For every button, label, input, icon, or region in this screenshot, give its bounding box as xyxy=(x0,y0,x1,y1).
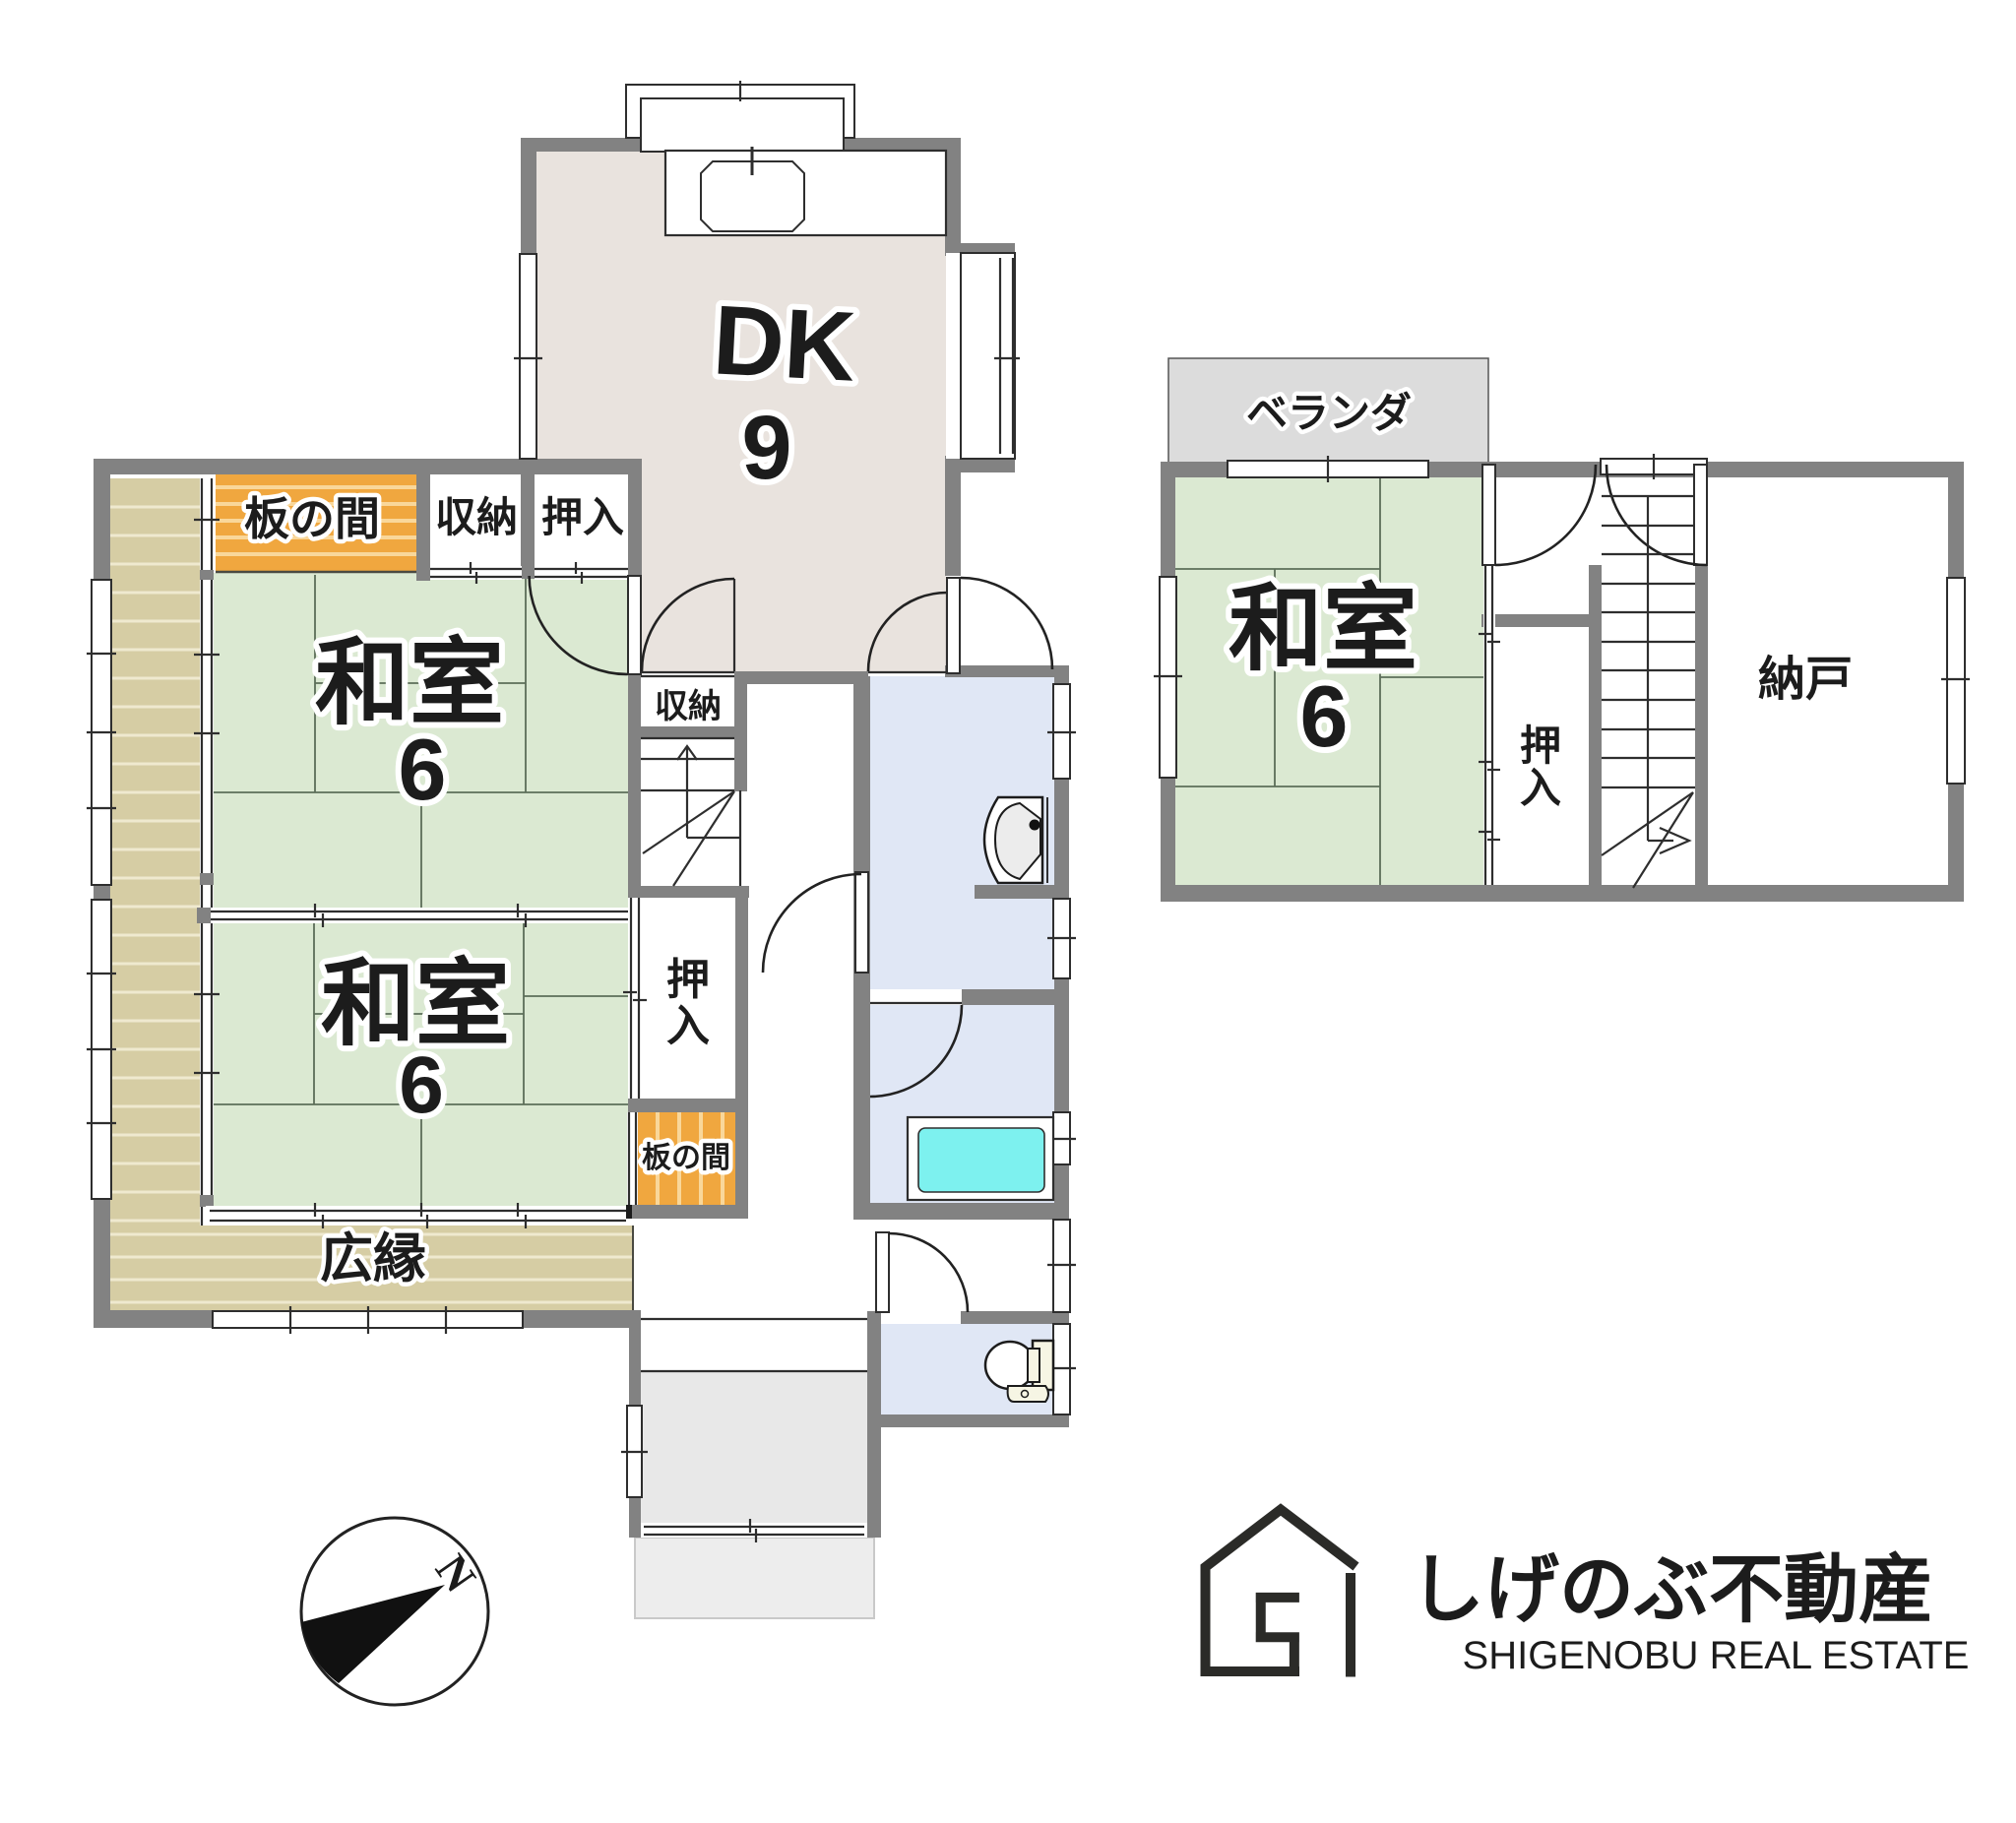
svg-text:9: 9 xyxy=(741,398,791,498)
svg-text:和室: 和室 xyxy=(1228,577,1417,682)
svg-text:納戸: 納戸 xyxy=(1758,654,1853,706)
svg-text:押: 押 xyxy=(1520,723,1561,769)
svg-text:ベランダ: ベランダ xyxy=(1246,390,1412,436)
svg-text:しげのぶ不動産: しげのぶ不動産 xyxy=(1410,1548,1933,1632)
svg-text:板の間: 板の間 xyxy=(244,493,380,544)
svg-text:6: 6 xyxy=(399,721,447,818)
svg-text:DK: DK xyxy=(711,284,858,402)
svg-text:6: 6 xyxy=(399,1040,444,1130)
svg-text:板の間: 板の間 xyxy=(642,1142,730,1174)
svg-text:収納: 収納 xyxy=(655,688,722,725)
svg-text:広縁: 広縁 xyxy=(320,1229,426,1289)
svg-text:収納: 収納 xyxy=(435,494,518,540)
svg-text:入: 入 xyxy=(1520,765,1561,811)
svg-text:押: 押 xyxy=(666,956,710,1004)
svg-text:6: 6 xyxy=(1300,667,1349,765)
svg-text:SHIGENOBU REAL ESTATE: SHIGENOBU REAL ESTATE xyxy=(1463,1634,1970,1677)
svg-text:押入: 押入 xyxy=(541,494,624,540)
svg-text:入: 入 xyxy=(666,1002,710,1050)
